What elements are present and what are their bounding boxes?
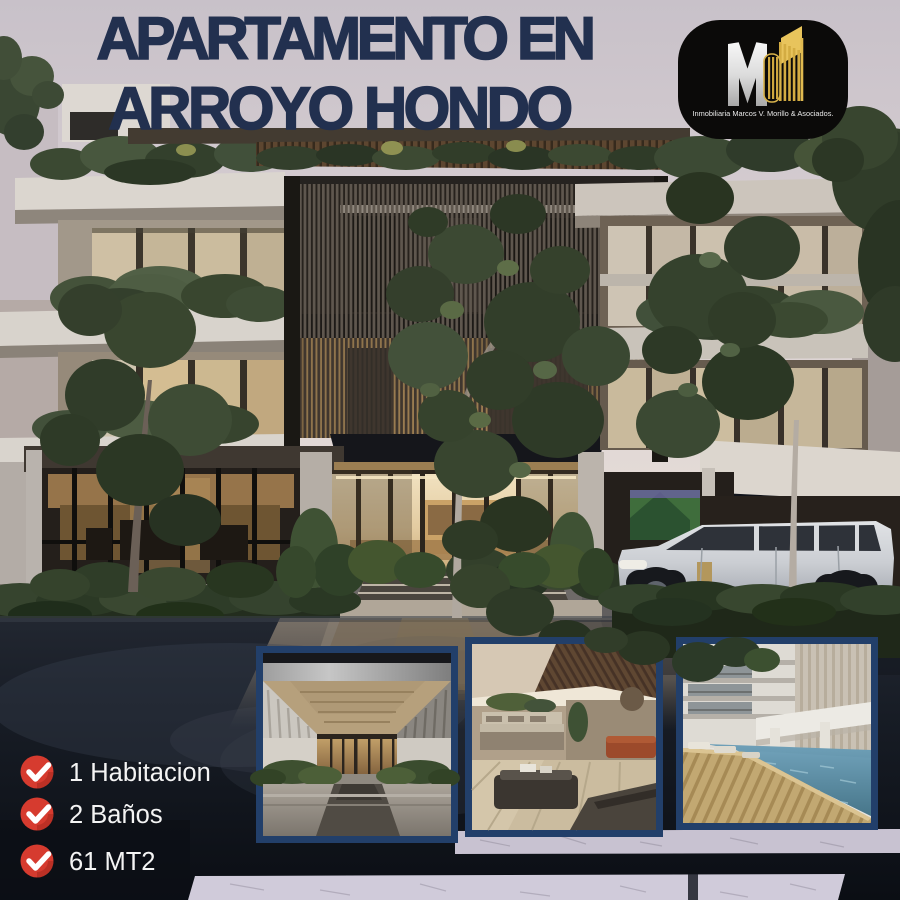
svg-text:Inmobiliaria Marcos V. Morillo: Inmobiliaria Marcos V. Morillo & Asociad… — [692, 109, 833, 118]
svg-text:APARTAMENTO EN: APARTAMENTO EN — [96, 5, 592, 72]
svg-text:ARROYO HONDO: ARROYO HONDO — [108, 75, 571, 142]
svg-text:1 Habitacion: 1 Habitacion — [69, 759, 211, 787]
svg-text:2 Baños: 2 Baños — [69, 801, 163, 829]
svg-text:61 MT2: 61 MT2 — [69, 848, 155, 876]
